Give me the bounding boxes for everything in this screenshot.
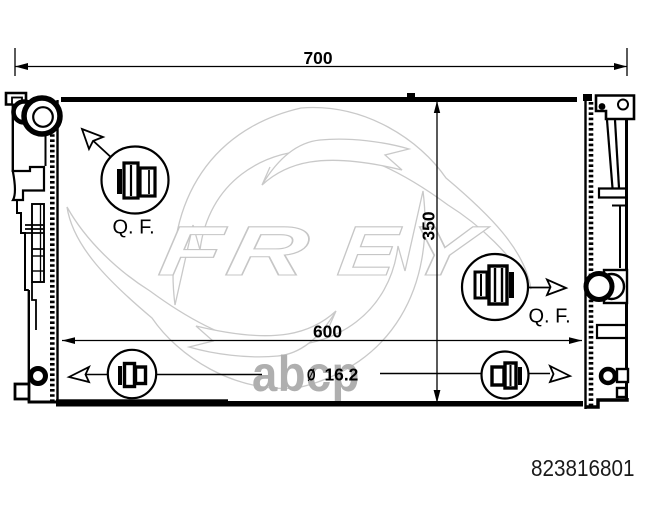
svg-text:600: 600 bbox=[313, 322, 342, 342]
svg-text:Q. F.: Q. F. bbox=[113, 217, 155, 239]
svg-text:R: R bbox=[221, 212, 314, 290]
svg-text:700: 700 bbox=[303, 48, 332, 68]
svg-text:350: 350 bbox=[419, 211, 439, 240]
svg-text:Ø: Ø bbox=[307, 365, 316, 384]
svg-text:16.2: 16.2 bbox=[325, 365, 359, 385]
svg-text:Q. F.: Q. F. bbox=[529, 306, 571, 328]
svg-text:823816801: 823816801 bbox=[531, 455, 634, 482]
